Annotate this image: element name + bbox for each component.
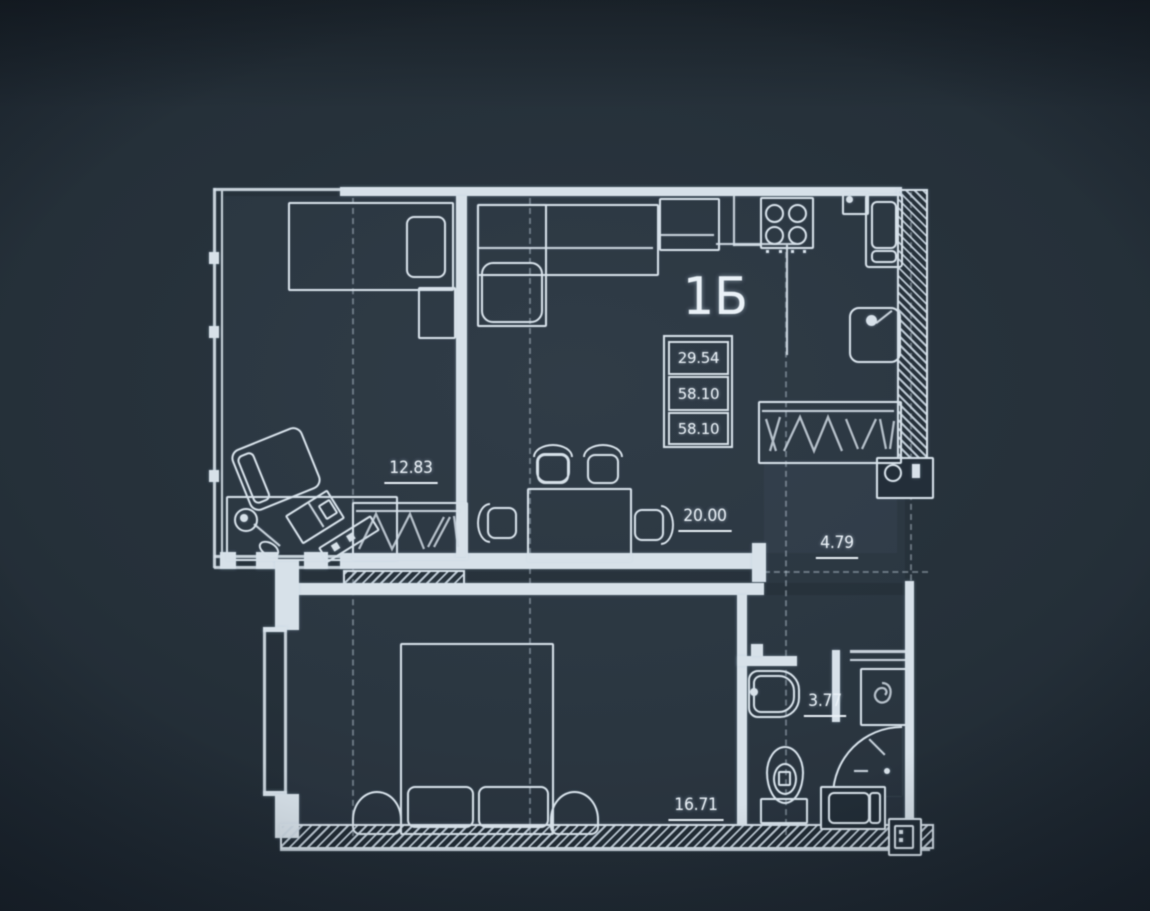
area-table-row-living-area: 29.54 — [668, 341, 729, 375]
window-mullion — [209, 326, 219, 338]
counter-edge — [733, 196, 735, 246]
pillow-icon — [407, 786, 474, 828]
wall-left-step — [275, 560, 299, 630]
window-top-left — [214, 188, 342, 191]
shaft-inner — [894, 825, 914, 849]
kitchen-zone-line — [786, 245, 788, 355]
window-left-outer — [213, 188, 216, 568]
wall-bath-left — [737, 595, 747, 825]
area-table-row-total-area: 58.10 — [668, 376, 729, 411]
dining-chair-icon — [477, 503, 517, 543]
burner-icon — [765, 204, 784, 223]
stove-knob-dot — [779, 250, 782, 253]
stove-knob-dot — [766, 250, 769, 253]
screenshot-canvas: 12.83 20.00 — [0, 0, 1150, 911]
stove-knob-dot — [803, 250, 806, 253]
shaft-vent-circle — [884, 464, 902, 482]
desk-lamp-dot — [240, 514, 248, 522]
shower-head-dot — [884, 768, 890, 774]
washing-machine-drum — [828, 792, 870, 824]
hanger-zigzag-icon — [760, 403, 896, 458]
room-area-label-living: 20.00 — [678, 506, 731, 532]
unit-type-label: 1Б — [683, 271, 748, 323]
area-table-row-total-area-2: 58.10 — [668, 412, 729, 445]
counter-edge — [733, 244, 761, 246]
vanity-top-line — [850, 659, 907, 661]
tv-stand-shelf-line — [661, 234, 714, 236]
dining-table-icon — [527, 488, 632, 562]
hanger-zigzag-icon — [354, 504, 462, 554]
vanity-sink-icon — [860, 668, 907, 726]
wall-bottom-line — [280, 849, 930, 851]
dining-chair-icon — [634, 505, 674, 545]
shaft-dot — [899, 830, 903, 834]
faucet-spiral-icon — [869, 679, 895, 711]
toilet-valve — [778, 771, 791, 786]
stove-knob-dot — [791, 250, 794, 253]
door-jamb — [751, 644, 763, 656]
burner-icon — [788, 204, 807, 223]
pillow-icon — [406, 216, 446, 278]
wall-top — [340, 187, 902, 196]
room-area-label-hall: 4.79 — [816, 533, 858, 559]
window-mullion — [209, 470, 219, 482]
dining-chair-icon — [533, 444, 573, 484]
sofa-armrest — [481, 262, 543, 323]
tv-stand-icon — [659, 198, 720, 251]
corner-cabinet-dot — [846, 196, 853, 203]
dining-chair-icon — [583, 444, 623, 484]
room-area-label-bathroom: 3.77 — [804, 691, 846, 717]
window-mullion — [209, 252, 219, 264]
washing-machine-panel — [869, 792, 881, 824]
toilet-cistern — [760, 798, 808, 824]
fridge-drawer — [871, 250, 897, 263]
room-area-label-office: 12.83 — [384, 458, 437, 484]
wardrobe-icon — [758, 401, 902, 464]
room-area-label-bedroom: 16.71 — [668, 795, 723, 821]
burner-icon — [765, 226, 784, 245]
shower-head-dash — [854, 770, 868, 772]
washbasin-inner — [753, 675, 795, 713]
vanity-top-line — [850, 650, 907, 653]
apartment-floor-plan: 12.83 20.00 — [0, 0, 1150, 911]
fridge-inner — [871, 201, 897, 249]
wardrobe-icon — [352, 502, 468, 560]
door-jamb — [752, 543, 766, 582]
burner-icon — [788, 226, 807, 245]
washbasin-drain-dot — [750, 688, 758, 696]
window-bedroom-inner — [284, 630, 287, 794]
wall-bath-top — [737, 656, 797, 666]
shaft-tick — [912, 464, 920, 478]
sink-faucet-dot — [866, 315, 877, 326]
window-bedroom-outer — [263, 630, 266, 794]
nightstand-icon — [418, 287, 456, 339]
pillow-icon — [478, 786, 549, 828]
window-left-inner — [221, 191, 223, 566]
shaft-dot — [899, 838, 903, 842]
window-cap — [263, 627, 287, 632]
wall-bedroom-top — [298, 583, 764, 595]
axis-line — [764, 571, 928, 573]
